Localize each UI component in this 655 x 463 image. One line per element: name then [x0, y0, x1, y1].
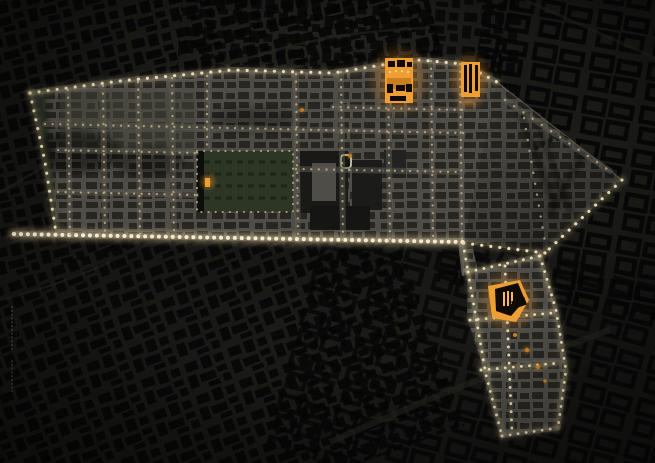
- map-screenshot: [0, 0, 655, 463]
- vignette: [0, 0, 655, 463]
- map-canvas: [0, 0, 655, 463]
